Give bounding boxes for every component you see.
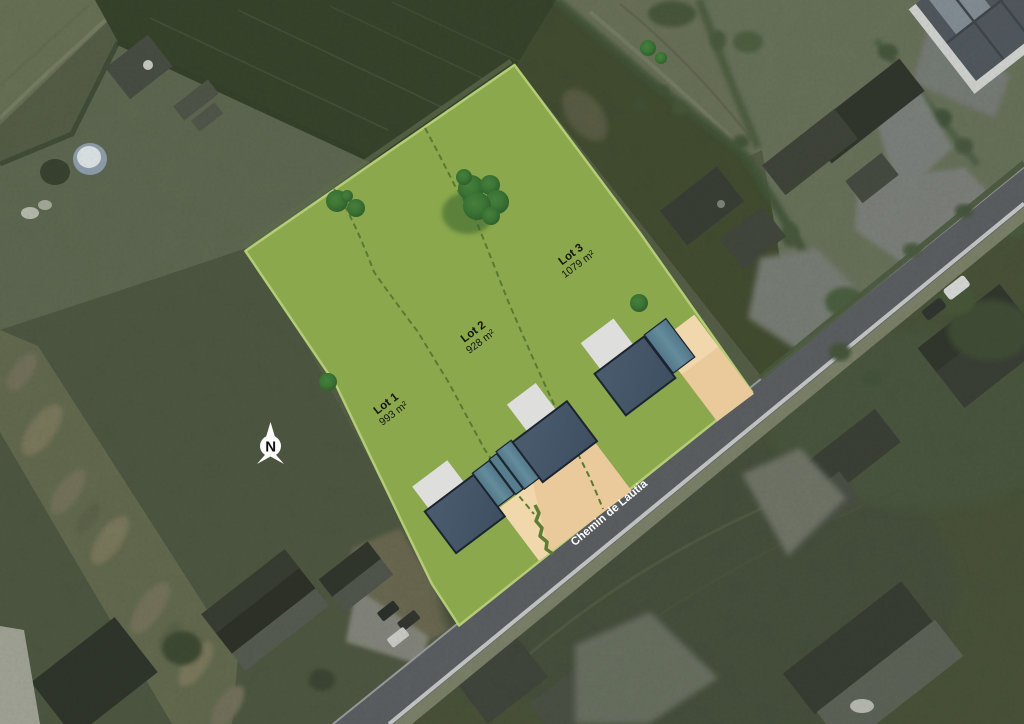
svg-text:N: N — [265, 439, 276, 456]
